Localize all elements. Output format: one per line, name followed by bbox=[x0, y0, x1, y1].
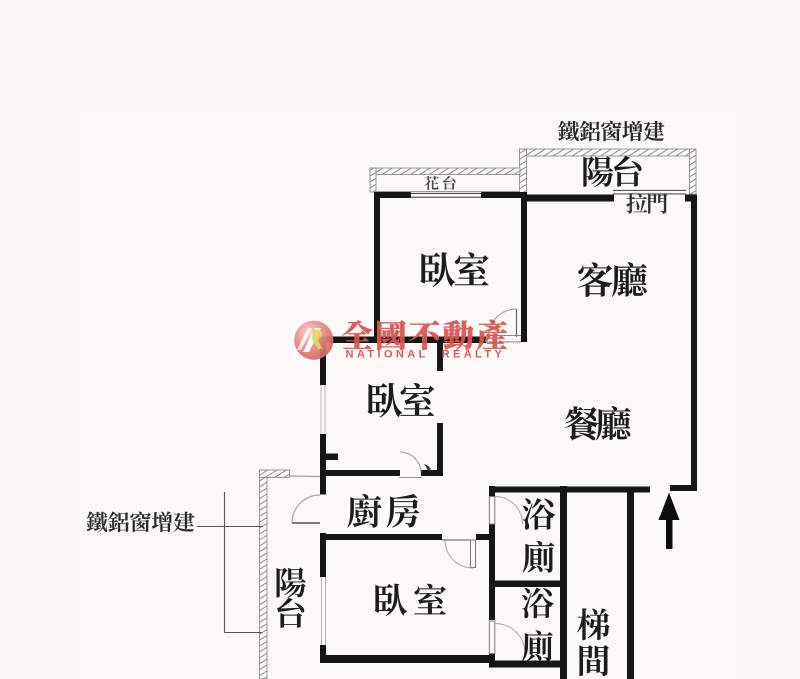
svg-text:NATIONAL REALTY: NATIONAL REALTY bbox=[346, 349, 506, 361]
